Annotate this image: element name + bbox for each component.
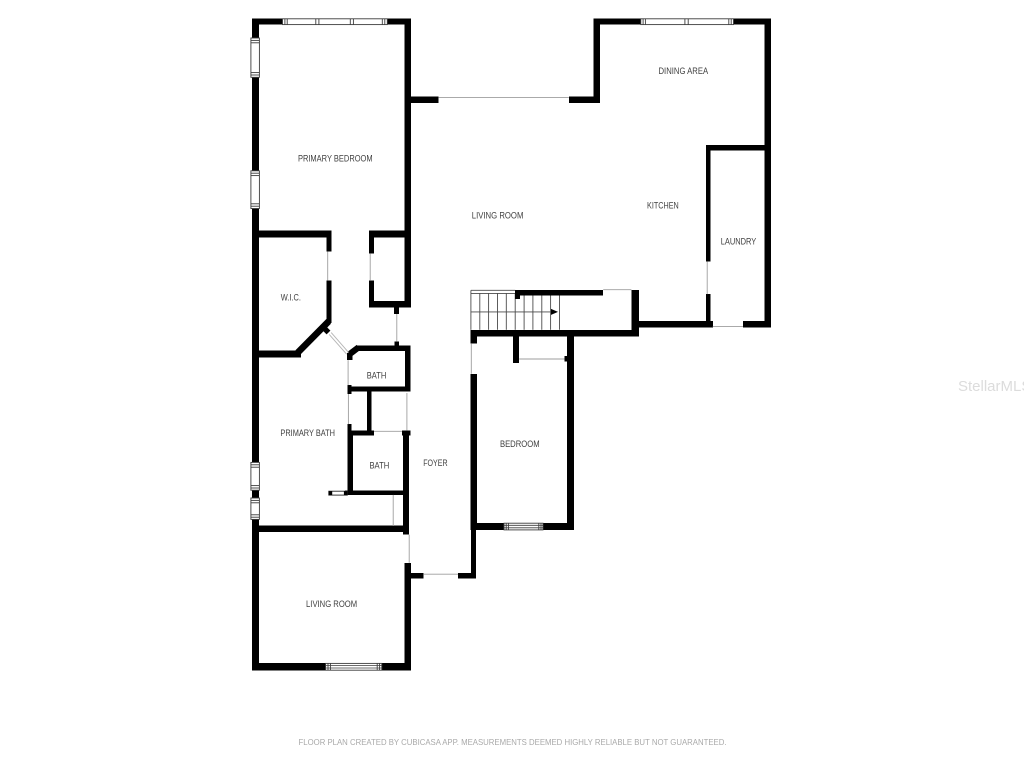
svg-text:BATH: BATH: [367, 371, 387, 381]
svg-text:W.I.C.: W.I.C.: [281, 293, 301, 303]
svg-text:BATH: BATH: [369, 460, 389, 470]
svg-text:LIVING ROOM: LIVING ROOM: [306, 599, 357, 609]
svg-text:LAUNDRY: LAUNDRY: [721, 237, 757, 247]
svg-text:PRIMARY BATH: PRIMARY BATH: [280, 428, 335, 438]
svg-text:LIVING ROOM: LIVING ROOM: [472, 211, 524, 221]
svg-text:BEDROOM: BEDROOM: [500, 439, 540, 449]
svg-text:StellarMLS: StellarMLS: [958, 378, 1024, 395]
svg-text:KITCHEN: KITCHEN: [647, 200, 679, 210]
svg-text:FLOOR PLAN CREATED BY CUBICASA: FLOOR PLAN CREATED BY CUBICASA APP. MEAS…: [299, 738, 727, 747]
svg-text:PRIMARY BEDROOM: PRIMARY BEDROOM: [298, 154, 373, 164]
svg-text:FOYER: FOYER: [423, 458, 448, 468]
svg-text:DINING AREA: DINING AREA: [659, 66, 709, 76]
